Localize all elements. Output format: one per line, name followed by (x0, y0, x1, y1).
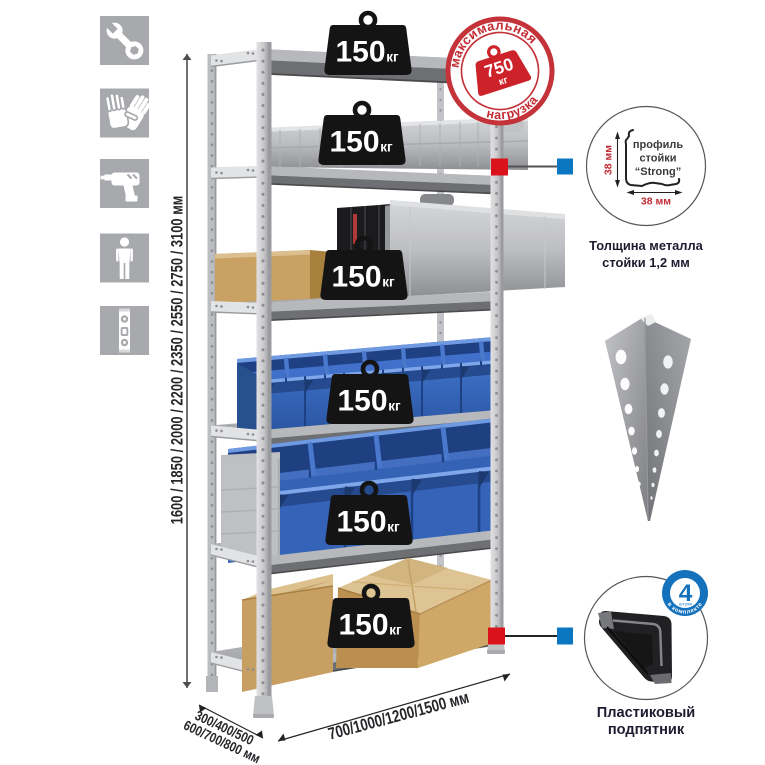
svg-text:штуки: штуки (679, 601, 693, 606)
svg-text:1600 / 1850 / 2000 / 2200 / 23: 1600 / 1850 / 2000 / 2200 / 2350 / 2550 … (169, 196, 187, 525)
svg-text:подпятник: подпятник (608, 722, 685, 738)
svg-text:“Strong”: “Strong” (635, 166, 681, 178)
svg-text:стойки 1,2 мм: стойки 1,2 мм (602, 255, 690, 270)
svg-text:Пластиковый: Пластиковый (597, 705, 696, 721)
svg-text:профиль: профиль (633, 139, 683, 151)
svg-text:Толщина металла: Толщина металла (589, 238, 704, 253)
svg-text:стойки: стойки (639, 153, 676, 165)
svg-text:38 мм: 38 мм (603, 145, 615, 175)
svg-text:38 мм: 38 мм (641, 196, 671, 208)
